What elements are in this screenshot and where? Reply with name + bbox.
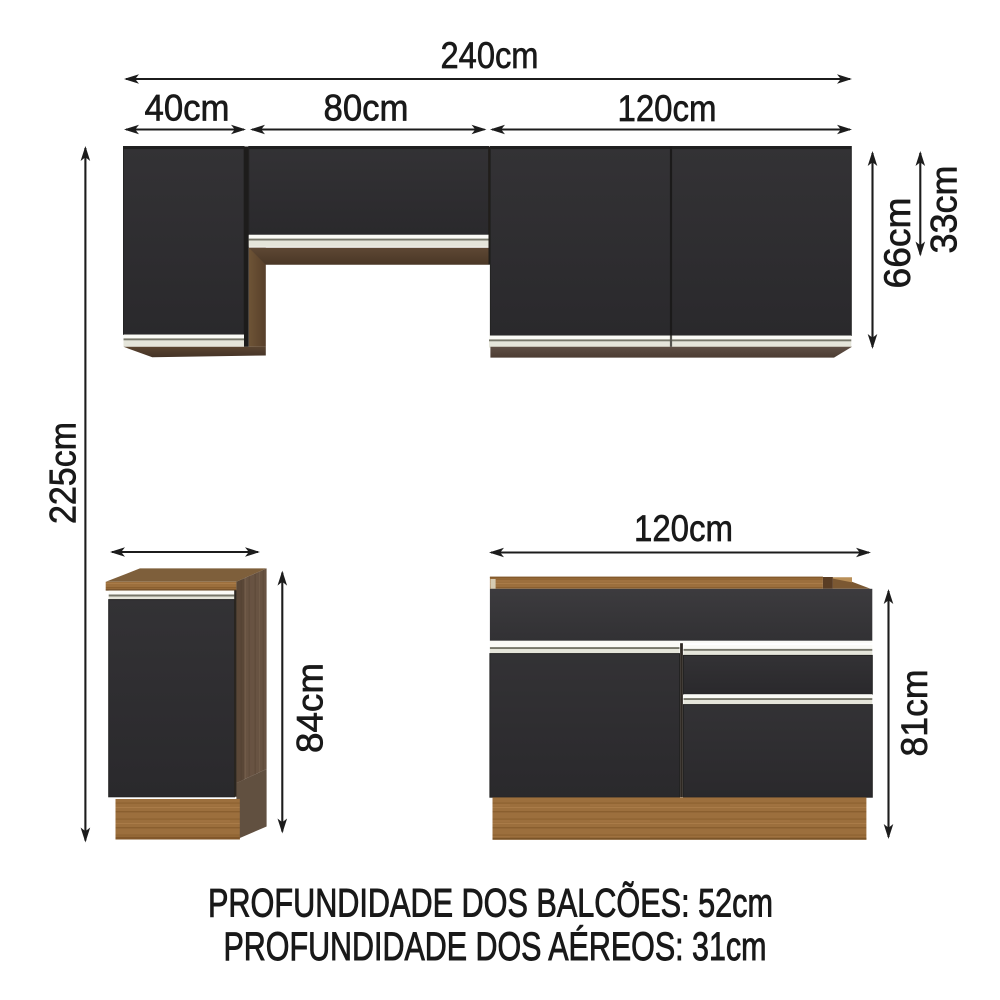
svg-text:33cm: 33cm xyxy=(924,166,965,254)
svg-text:PROFUNDIDADE DOS AÉREOS: 31cm: PROFUNDIDADE DOS AÉREOS: 31cm xyxy=(224,924,767,969)
svg-text:84cm: 84cm xyxy=(290,663,331,753)
svg-text:120cm: 120cm xyxy=(618,88,717,129)
svg-text:225cm: 225cm xyxy=(43,422,84,524)
svg-text:40cm: 40cm xyxy=(145,88,230,129)
svg-text:120cm: 120cm xyxy=(634,508,733,549)
svg-text:80cm: 80cm xyxy=(324,88,409,129)
svg-text:240cm: 240cm xyxy=(441,35,539,76)
svg-text:PROFUNDIDADE DOS BALCÕES: 52cm: PROFUNDIDADE DOS BALCÕES: 52cm xyxy=(208,881,773,926)
svg-text:81cm: 81cm xyxy=(894,670,935,757)
svg-text:66cm: 66cm xyxy=(877,198,918,289)
